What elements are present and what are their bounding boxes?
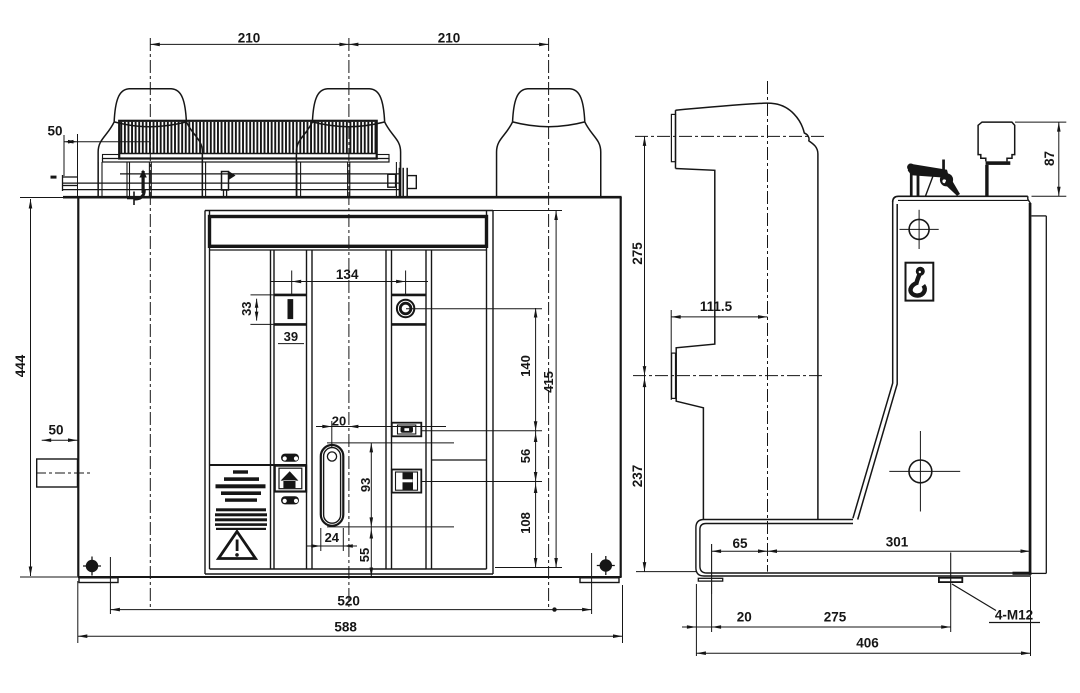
svg-text:108: 108 [518, 512, 533, 534]
svg-text:210: 210 [438, 31, 461, 46]
svg-text:275: 275 [630, 242, 645, 265]
svg-text:55: 55 [357, 548, 372, 562]
svg-text:39: 39 [284, 329, 298, 344]
svg-text:56: 56 [518, 449, 533, 463]
svg-text:415: 415 [541, 371, 556, 393]
svg-text:87: 87 [1042, 151, 1057, 166]
svg-text:134: 134 [336, 267, 359, 282]
svg-text:20: 20 [332, 413, 346, 428]
svg-text:50: 50 [47, 124, 62, 139]
svg-text:65: 65 [732, 536, 748, 551]
svg-text:20: 20 [737, 610, 752, 625]
svg-text:111.5: 111.5 [700, 299, 733, 314]
svg-text:301: 301 [886, 534, 909, 549]
svg-text:4-M12: 4-M12 [995, 608, 1033, 623]
svg-text:444: 444 [13, 354, 28, 377]
svg-text:50: 50 [48, 423, 63, 438]
svg-text:33: 33 [239, 301, 254, 315]
svg-text:520: 520 [337, 594, 360, 609]
svg-text:588: 588 [334, 620, 357, 635]
svg-text:140: 140 [518, 355, 533, 377]
svg-text:275: 275 [824, 610, 847, 625]
svg-text:210: 210 [238, 31, 261, 46]
svg-text:237: 237 [630, 465, 645, 488]
svg-text:93: 93 [358, 478, 373, 492]
svg-text:24: 24 [325, 530, 340, 545]
svg-text:406: 406 [856, 636, 879, 651]
